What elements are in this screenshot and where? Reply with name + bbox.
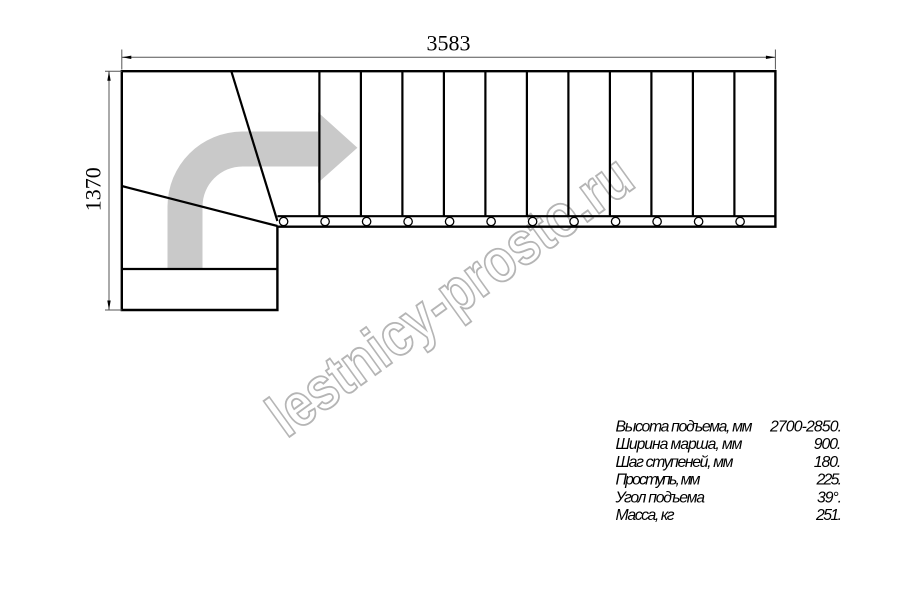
svg-text:Высота подъема, мм: Высота подъема, мм xyxy=(616,419,753,436)
svg-text:180.: 180. xyxy=(814,454,842,471)
svg-text:Ширина марша, мм: Ширина марша, мм xyxy=(616,436,743,453)
svg-text:Масса, кг: Масса, кг xyxy=(616,507,675,524)
svg-text:Шаг ступеней, мм: Шаг ступеней, мм xyxy=(616,454,734,471)
svg-text:Проступь, мм: Проступь, мм xyxy=(616,472,701,489)
svg-text:900.: 900. xyxy=(814,436,842,453)
svg-text:lestnicy-prosto.ru: lestnicy-prosto.ru xyxy=(254,141,645,449)
svg-text:1370: 1370 xyxy=(80,167,105,211)
svg-text:39°.: 39°. xyxy=(817,489,842,506)
svg-text:3583: 3583 xyxy=(427,31,471,56)
svg-text:225.: 225. xyxy=(816,472,843,489)
svg-text:Угол подъема: Угол подъема xyxy=(615,489,706,506)
svg-text:251.: 251. xyxy=(815,507,842,524)
svg-text:2700-2850.: 2700-2850. xyxy=(769,419,842,436)
